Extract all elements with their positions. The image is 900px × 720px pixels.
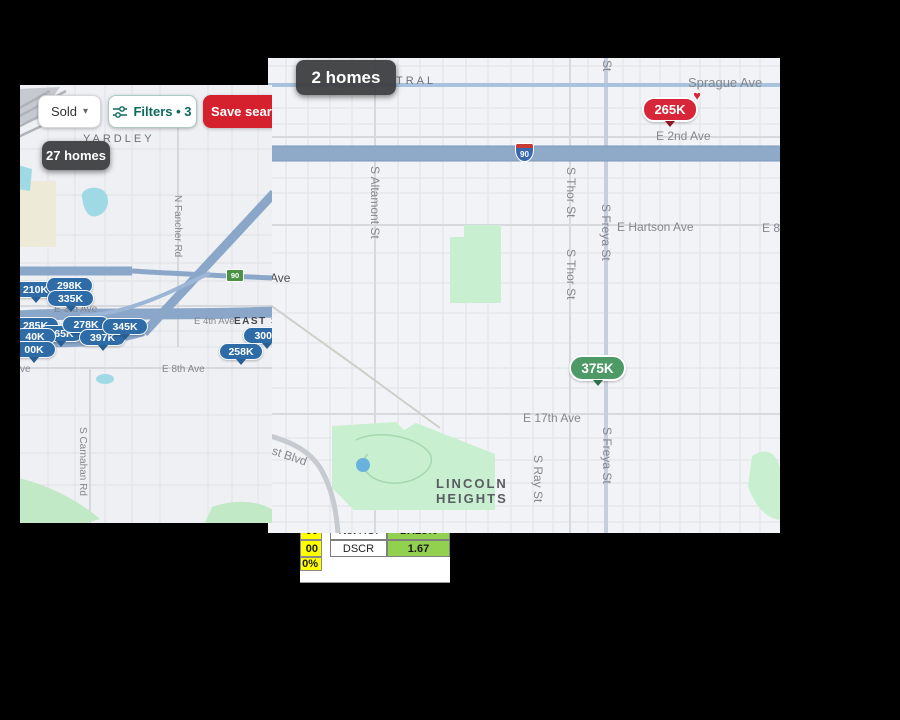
pin-tail [120,334,130,340]
sheet-empty-row[interactable] [300,571,450,582]
street-label-e-8th-ave: E 8th Ave [162,364,205,375]
street-label-n-fancher-rd: N Fancher Rd [172,195,183,257]
pin-tail [262,343,272,349]
pin-tail [66,306,76,312]
sheet-input-cell[interactable]: 00 [300,540,322,557]
street-label-e-17th-ave: E 17th Ave [523,411,581,425]
street-label-s-freya-st: S Freya St [599,204,613,261]
area-label-lincoln: LINCOLN [436,476,508,491]
map-window-small[interactable]: Sold ▾ Filters • 3 Save search 27 homes … [20,85,272,523]
sheet-spacer-cell[interactable] [322,557,330,571]
pin-tail [593,380,603,386]
pin-tail [29,357,39,363]
homes-count-badge: 27 homes [42,141,110,170]
price-pin[interactable]: 258K [219,343,263,360]
street-label-s-carnahan-rd: S Carnahan Rd [77,427,88,496]
street-label-ave-clipped: ve [20,364,31,375]
sold-filter-dropdown[interactable]: Sold ▾ [38,95,101,128]
street-label-st-clipped: St [600,60,614,71]
street-label-s-thor-st: S Thor St [564,167,578,217]
chevron-down-icon: ▾ [83,106,88,117]
street-label-e-2nd-ave: E 2nd Ave [656,129,711,143]
sheet-value-cell[interactable]: 1.67 [387,540,450,557]
price-pin[interactable]: 345K [102,318,148,335]
sheet-row-dscr: 00 DSCR 1.67 [300,540,450,557]
price-pin-green[interactable]: 375K [569,355,626,381]
map-window-large[interactable]: 2 homes TRAL Sprague Ave St E 2nd Ave Av… [268,58,780,533]
sheet-label-cell[interactable]: DSCR [330,540,387,557]
sheet-empty-cell[interactable] [387,557,450,571]
price-pin-favorite[interactable]: 265K ♥ [642,97,698,122]
pin-tail [665,121,675,127]
pin-tail [98,345,108,351]
sheet-input-cell[interactable]: 0% [300,557,322,571]
area-label-central: TRAL [396,75,436,87]
area-label-heights: HEIGHTS [436,491,508,506]
street-label-s-altamont-st: S Altamont St [368,166,382,239]
area-label-east-s-clipped: EAST S [234,316,272,327]
sheet-spacer-cell[interactable] [322,540,330,557]
street-label-s-ray-st: S Ray St [531,455,545,502]
filters-button[interactable]: Filters • 3 [108,95,197,128]
pin-tail [56,341,66,347]
pin-tail [236,359,246,365]
street-label-e-hartson-ave: E Hartson Ave [617,220,694,234]
shield-top-band [516,144,533,148]
highway-90-shield-icon: 90 [226,269,244,282]
price-pin[interactable]: 00K [20,341,56,358]
filter-sliders-icon [113,106,127,118]
homes-count-badge: 2 homes [296,60,396,95]
street-label-ave-clipped: Ave [270,271,290,285]
street-label-s-freya-st: S Freya St [600,427,614,484]
street-label-e-4th-ave: E 4th Ave [194,316,235,327]
sheet-row-percent: 0% [300,557,450,571]
save-search-button[interactable]: Save search [203,95,272,128]
price-pin[interactable]: 335K [47,290,94,307]
pin-tail [31,297,41,303]
desktop-background: 00 Net ROI 17.28% 00 DSCR 1.67 0% [0,0,900,720]
street-label-e-8th-clipped: E 8t [762,221,780,235]
favorite-heart-icon: ♥ [693,88,701,103]
street-label-s-thor-st: S Thor St [564,249,578,299]
price-pin[interactable]: 300K [243,327,272,344]
sheet-empty-cell[interactable] [330,557,387,571]
